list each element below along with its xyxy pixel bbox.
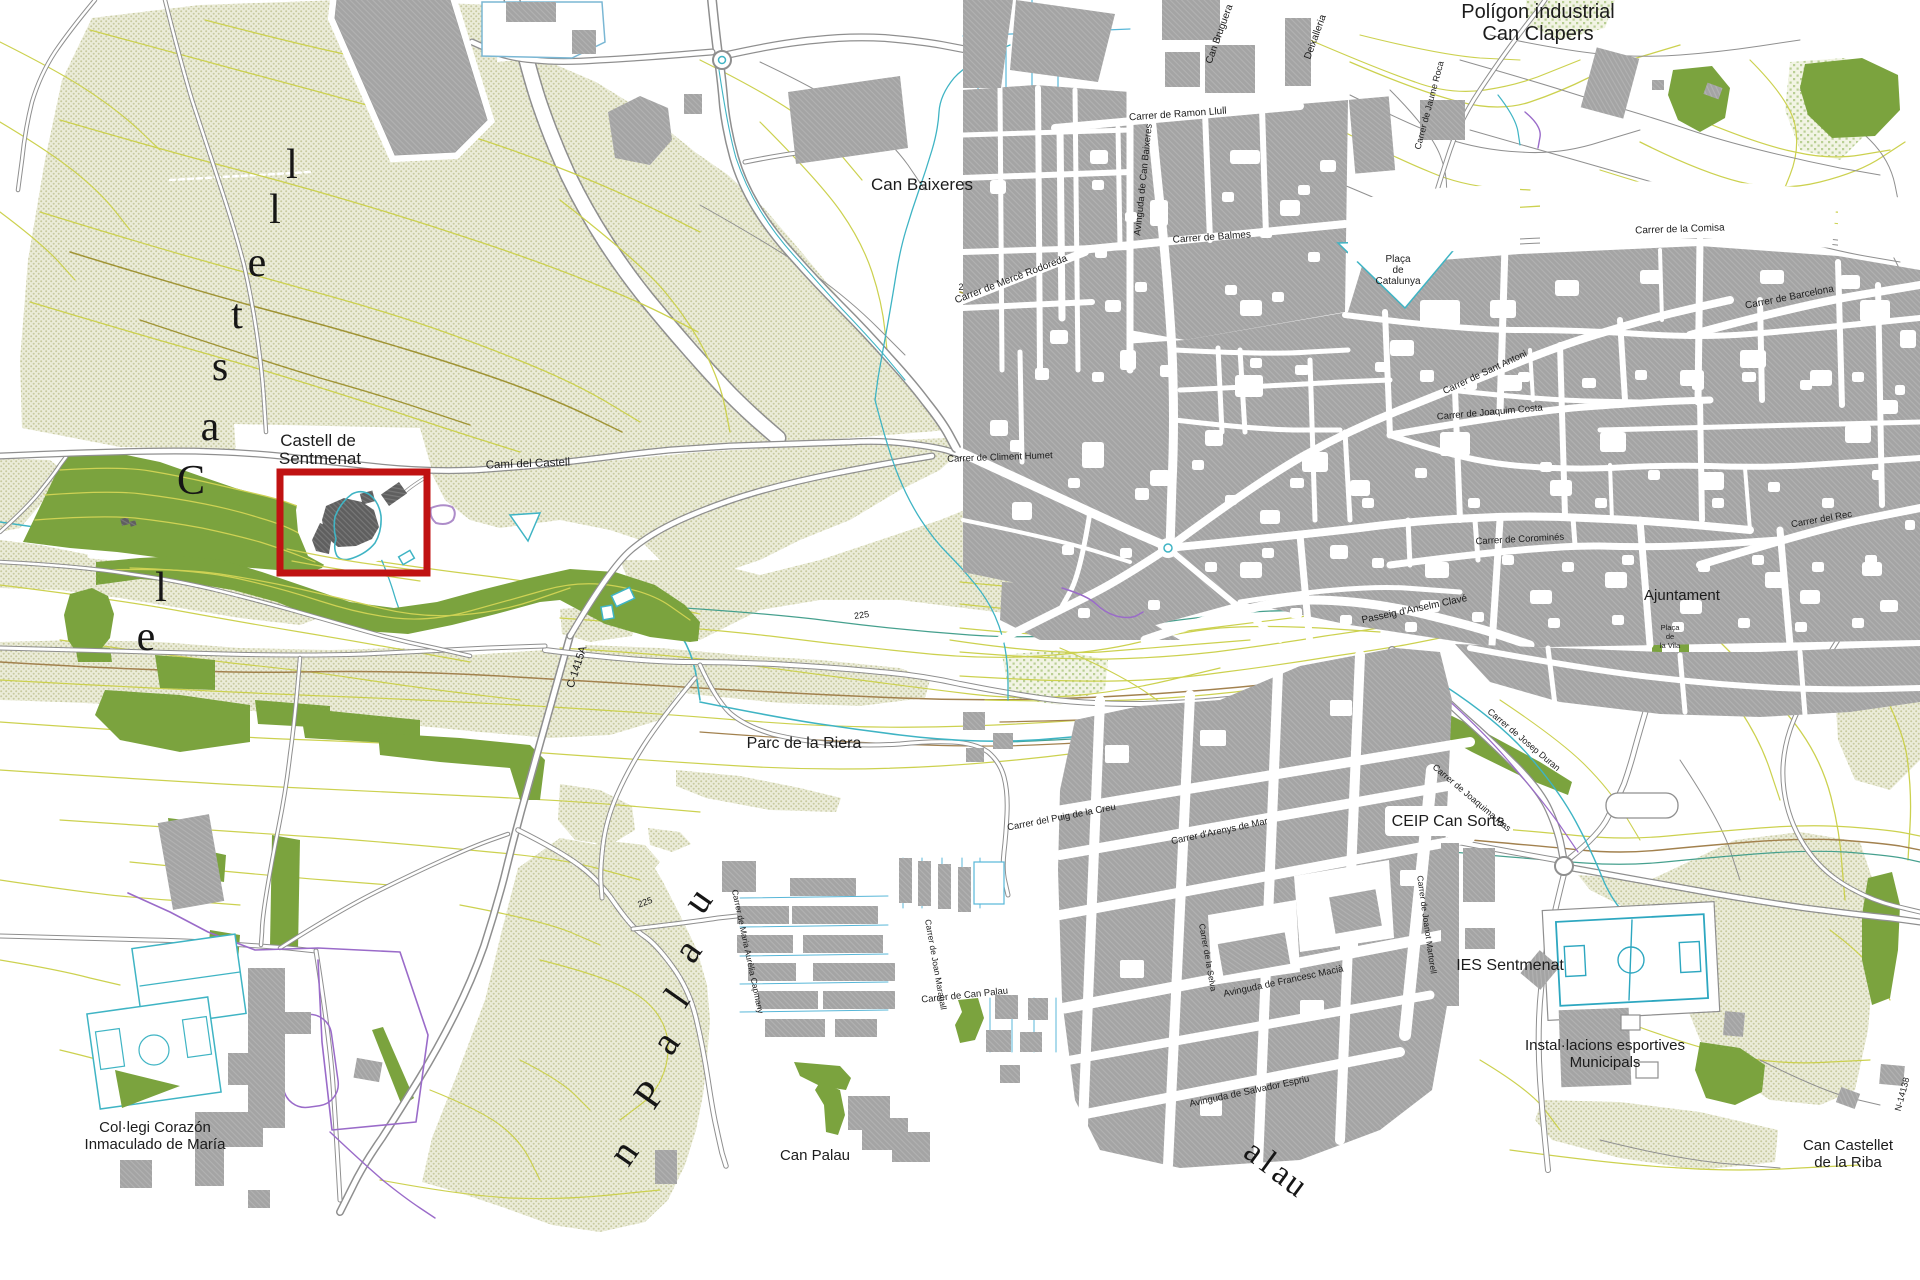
- svg-text:Inmaculado de María: Inmaculado de María: [85, 1136, 227, 1153]
- svg-text:de la Riba: de la Riba: [1814, 1154, 1882, 1171]
- svg-text:l: l: [286, 142, 298, 188]
- svg-text:s: s: [212, 344, 228, 390]
- svg-text:u: u: [673, 879, 721, 921]
- svg-text:Municipals: Municipals: [1570, 1054, 1641, 1071]
- svg-text:Can Clapers: Can Clapers: [1482, 23, 1593, 45]
- svg-text:Catalunya: Catalunya: [1375, 276, 1420, 287]
- svg-text:e: e: [248, 240, 267, 286]
- svg-text:Castell de: Castell de: [280, 431, 356, 450]
- svg-text:Ajuntament: Ajuntament: [1644, 587, 1721, 604]
- svg-text:IES Sentmenat: IES Sentmenat: [1456, 957, 1564, 974]
- svg-text:Plaça: Plaça: [1661, 623, 1681, 632]
- svg-text:225: 225: [853, 609, 869, 621]
- svg-text:Can Castellet: Can Castellet: [1803, 1137, 1894, 1154]
- svg-text:Polígon industrial: Polígon industrial: [1461, 1, 1614, 23]
- svg-text:Plaça: Plaça: [1385, 254, 1410, 265]
- svg-text:t: t: [231, 292, 243, 338]
- svg-text:la Vila: la Vila: [1660, 641, 1681, 650]
- svg-text:de: de: [1392, 265, 1404, 276]
- svg-text:a: a: [201, 404, 220, 450]
- svg-text:Can Palau: Can Palau: [780, 1147, 850, 1164]
- svg-text:Instal·lacions esportives: Instal·lacions esportives: [1525, 1037, 1685, 1054]
- svg-text:Sentmenat: Sentmenat: [279, 449, 361, 468]
- svg-text:l: l: [155, 565, 167, 611]
- svg-text:l: l: [269, 187, 281, 233]
- svg-text:e: e: [137, 614, 156, 660]
- svg-text:Can Baixeres: Can Baixeres: [871, 175, 973, 194]
- svg-text:Col·legi Corazón: Col·legi Corazón: [99, 1119, 211, 1136]
- svg-text:C: C: [177, 458, 205, 504]
- svg-text:Parc de la Riera: Parc de la Riera: [747, 735, 862, 752]
- svg-text:de: de: [1666, 632, 1674, 641]
